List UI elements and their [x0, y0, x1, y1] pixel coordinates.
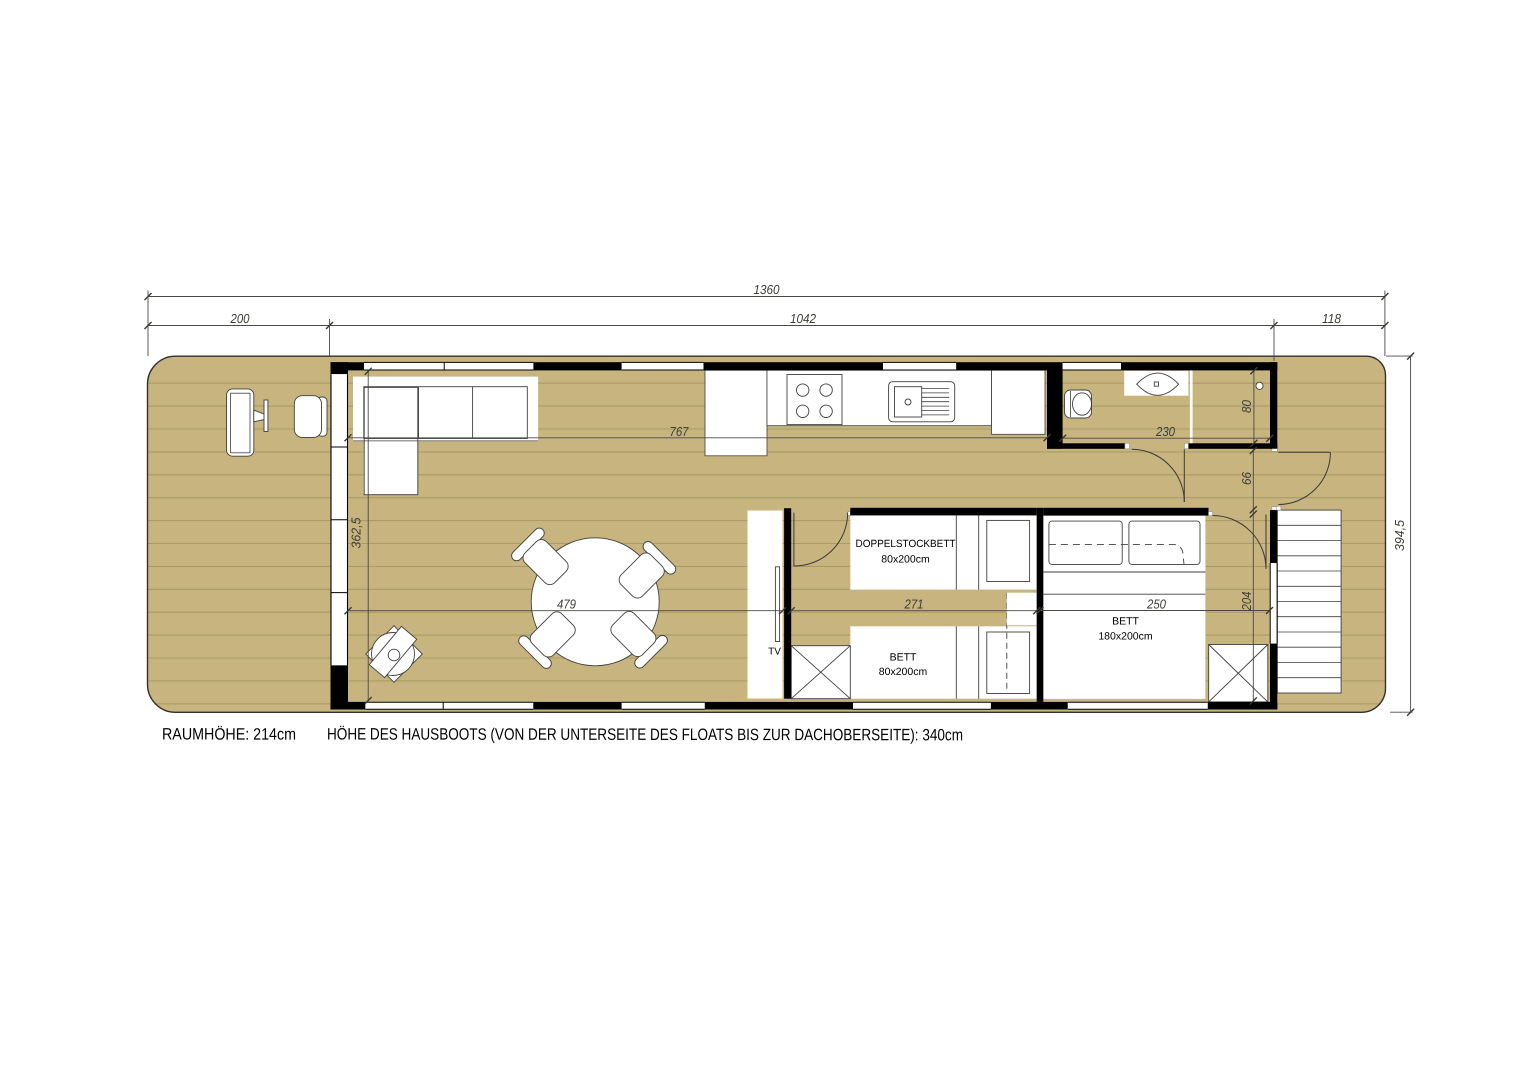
svg-text:HÖHE DES HAUSBOOTS (VON DER UN: HÖHE DES HAUSBOOTS (VON DER UNTERSEITE D… [327, 726, 963, 745]
svg-text:394,5: 394,5 [1392, 519, 1407, 551]
svg-text:250: 250 [1146, 596, 1167, 611]
svg-text:1042: 1042 [790, 311, 817, 326]
svg-text:66: 66 [1239, 471, 1254, 485]
svg-text:80x200cm: 80x200cm [879, 666, 928, 678]
svg-text:DOPPELSTOCKBETT: DOPPELSTOCKBETT [855, 538, 956, 550]
svg-text:204: 204 [1239, 592, 1254, 612]
svg-text:180x200cm: 180x200cm [1098, 630, 1153, 642]
svg-text:BETT: BETT [890, 651, 917, 663]
svg-text:BETT: BETT [1112, 615, 1139, 627]
svg-text:479: 479 [557, 596, 576, 611]
svg-text:230: 230 [1155, 424, 1176, 439]
svg-text:118: 118 [1322, 311, 1342, 326]
svg-text:RAUMHÖHE: 214cm: RAUMHÖHE: 214cm [162, 726, 296, 744]
svg-text:80: 80 [1239, 399, 1254, 413]
svg-text:200: 200 [230, 311, 251, 326]
svg-text:767: 767 [669, 424, 689, 439]
svg-text:1360: 1360 [753, 282, 780, 297]
svg-text:TV: TV [768, 646, 781, 657]
svg-text:80x200cm: 80x200cm [881, 553, 930, 565]
svg-text:271: 271 [904, 596, 924, 611]
svg-text:362,5: 362,5 [349, 517, 364, 549]
